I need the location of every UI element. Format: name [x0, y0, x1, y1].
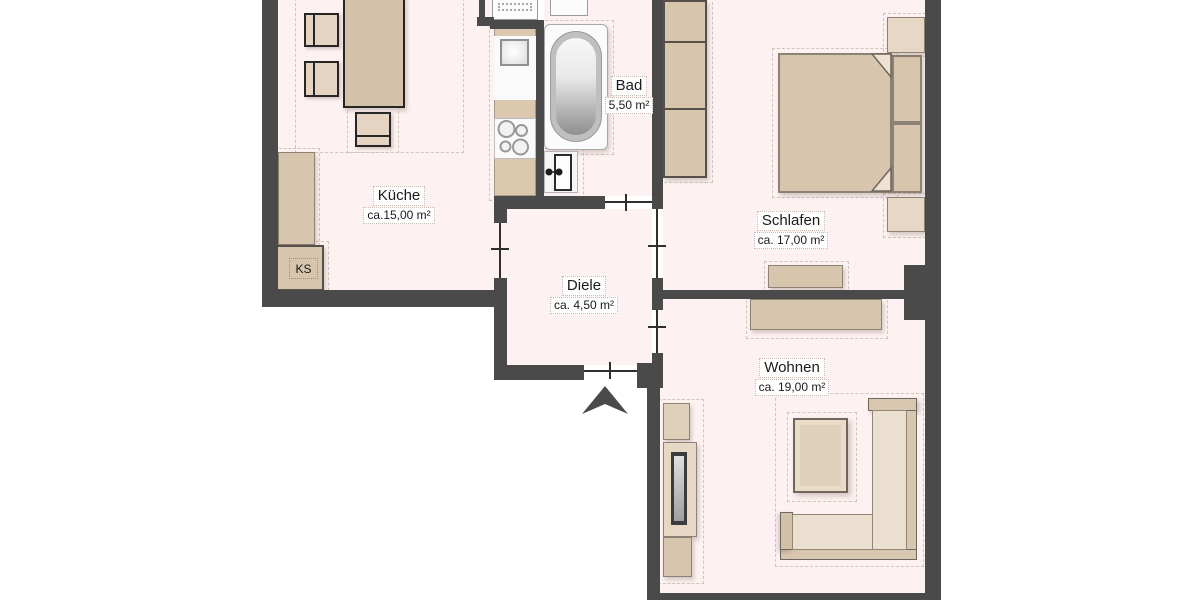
wardrobe-divider — [665, 41, 705, 43]
room-name: Bad — [611, 76, 648, 96]
kitchen-sink — [500, 39, 529, 66]
wardrobe-divider — [665, 108, 705, 110]
room-area: ca. 17,00 m² — [754, 232, 829, 249]
wall — [647, 388, 660, 593]
door-tick — [648, 245, 666, 247]
wall — [494, 196, 605, 209]
chair-backrest — [357, 135, 389, 137]
room-area: ca.15,00 m² — [363, 207, 434, 224]
wall — [494, 365, 584, 380]
washbasin-bowl — [554, 154, 572, 191]
coffee-table — [793, 418, 848, 493]
wall — [652, 290, 904, 299]
washing-machine — [492, 0, 538, 20]
room-name: Diele — [562, 276, 606, 296]
door-tick — [609, 362, 611, 379]
chair — [304, 13, 339, 47]
room-name: Schlafen — [757, 211, 825, 231]
sideboard — [768, 265, 843, 288]
room-area: 5,50 m² — [605, 97, 654, 114]
tv-lowboard-bottom — [663, 537, 692, 577]
bed-headboard — [892, 123, 922, 193]
fridge-label: KS — [289, 258, 318, 279]
kitchen-worktop — [494, 69, 536, 100]
fridge-unit: KS — [275, 245, 324, 291]
washing-machine-detail — [498, 3, 532, 11]
door-opening — [605, 201, 652, 203]
room-label-kueche: Küche ca.15,00 m² — [353, 186, 445, 224]
entrance-arrow — [582, 386, 628, 414]
nightstand — [887, 17, 925, 53]
nightstand — [887, 197, 925, 232]
wall — [490, 20, 544, 29]
door-opening — [499, 223, 501, 278]
room-area: ca. 19,00 m² — [755, 379, 830, 396]
tall-cabinet — [278, 152, 315, 245]
room-name: Wohnen — [759, 358, 825, 378]
door-opening — [656, 310, 658, 353]
tv-lowboard-top — [663, 403, 690, 440]
bath-appliance — [550, 0, 588, 16]
door-tick — [625, 194, 627, 211]
room-label-schlafen: Schlafen ca. 17,00 m² — [741, 211, 841, 249]
door-opening — [656, 209, 658, 278]
dining-table — [343, 0, 405, 108]
floor-plan: KS — [0, 0, 1200, 600]
room-name: Küche — [373, 186, 426, 206]
wall — [647, 593, 941, 600]
wall — [262, 290, 494, 307]
bed-headboard — [892, 55, 922, 123]
room-area: ca. 4,50 m² — [550, 297, 618, 314]
room-label-wohnen: Wohnen ca. 19,00 m² — [742, 358, 842, 396]
wall — [536, 20, 544, 196]
door-tick — [491, 248, 509, 250]
tv-screen — [674, 456, 684, 521]
wall — [637, 363, 663, 388]
chair — [355, 112, 391, 147]
wall — [904, 265, 925, 320]
bed — [778, 53, 892, 193]
room-label-diele: Diele ca. 4,50 m² — [537, 276, 631, 314]
chair — [304, 61, 339, 97]
sofa-seat-bottom — [792, 514, 873, 550]
sofa-seat-right — [872, 410, 907, 550]
wardrobe — [663, 0, 707, 178]
door-tick — [648, 326, 666, 328]
room-label-bad: Bad 5,50 m² — [596, 76, 662, 114]
chair-backrest — [313, 63, 315, 95]
wall — [925, 0, 941, 600]
sideboard — [750, 299, 882, 330]
sofa-back-right — [906, 410, 917, 560]
sofa-back-bottom — [780, 549, 917, 560]
chair-backrest — [313, 15, 315, 45]
bathtub-basin — [556, 38, 596, 135]
wall — [262, 0, 278, 307]
stove — [494, 118, 536, 159]
